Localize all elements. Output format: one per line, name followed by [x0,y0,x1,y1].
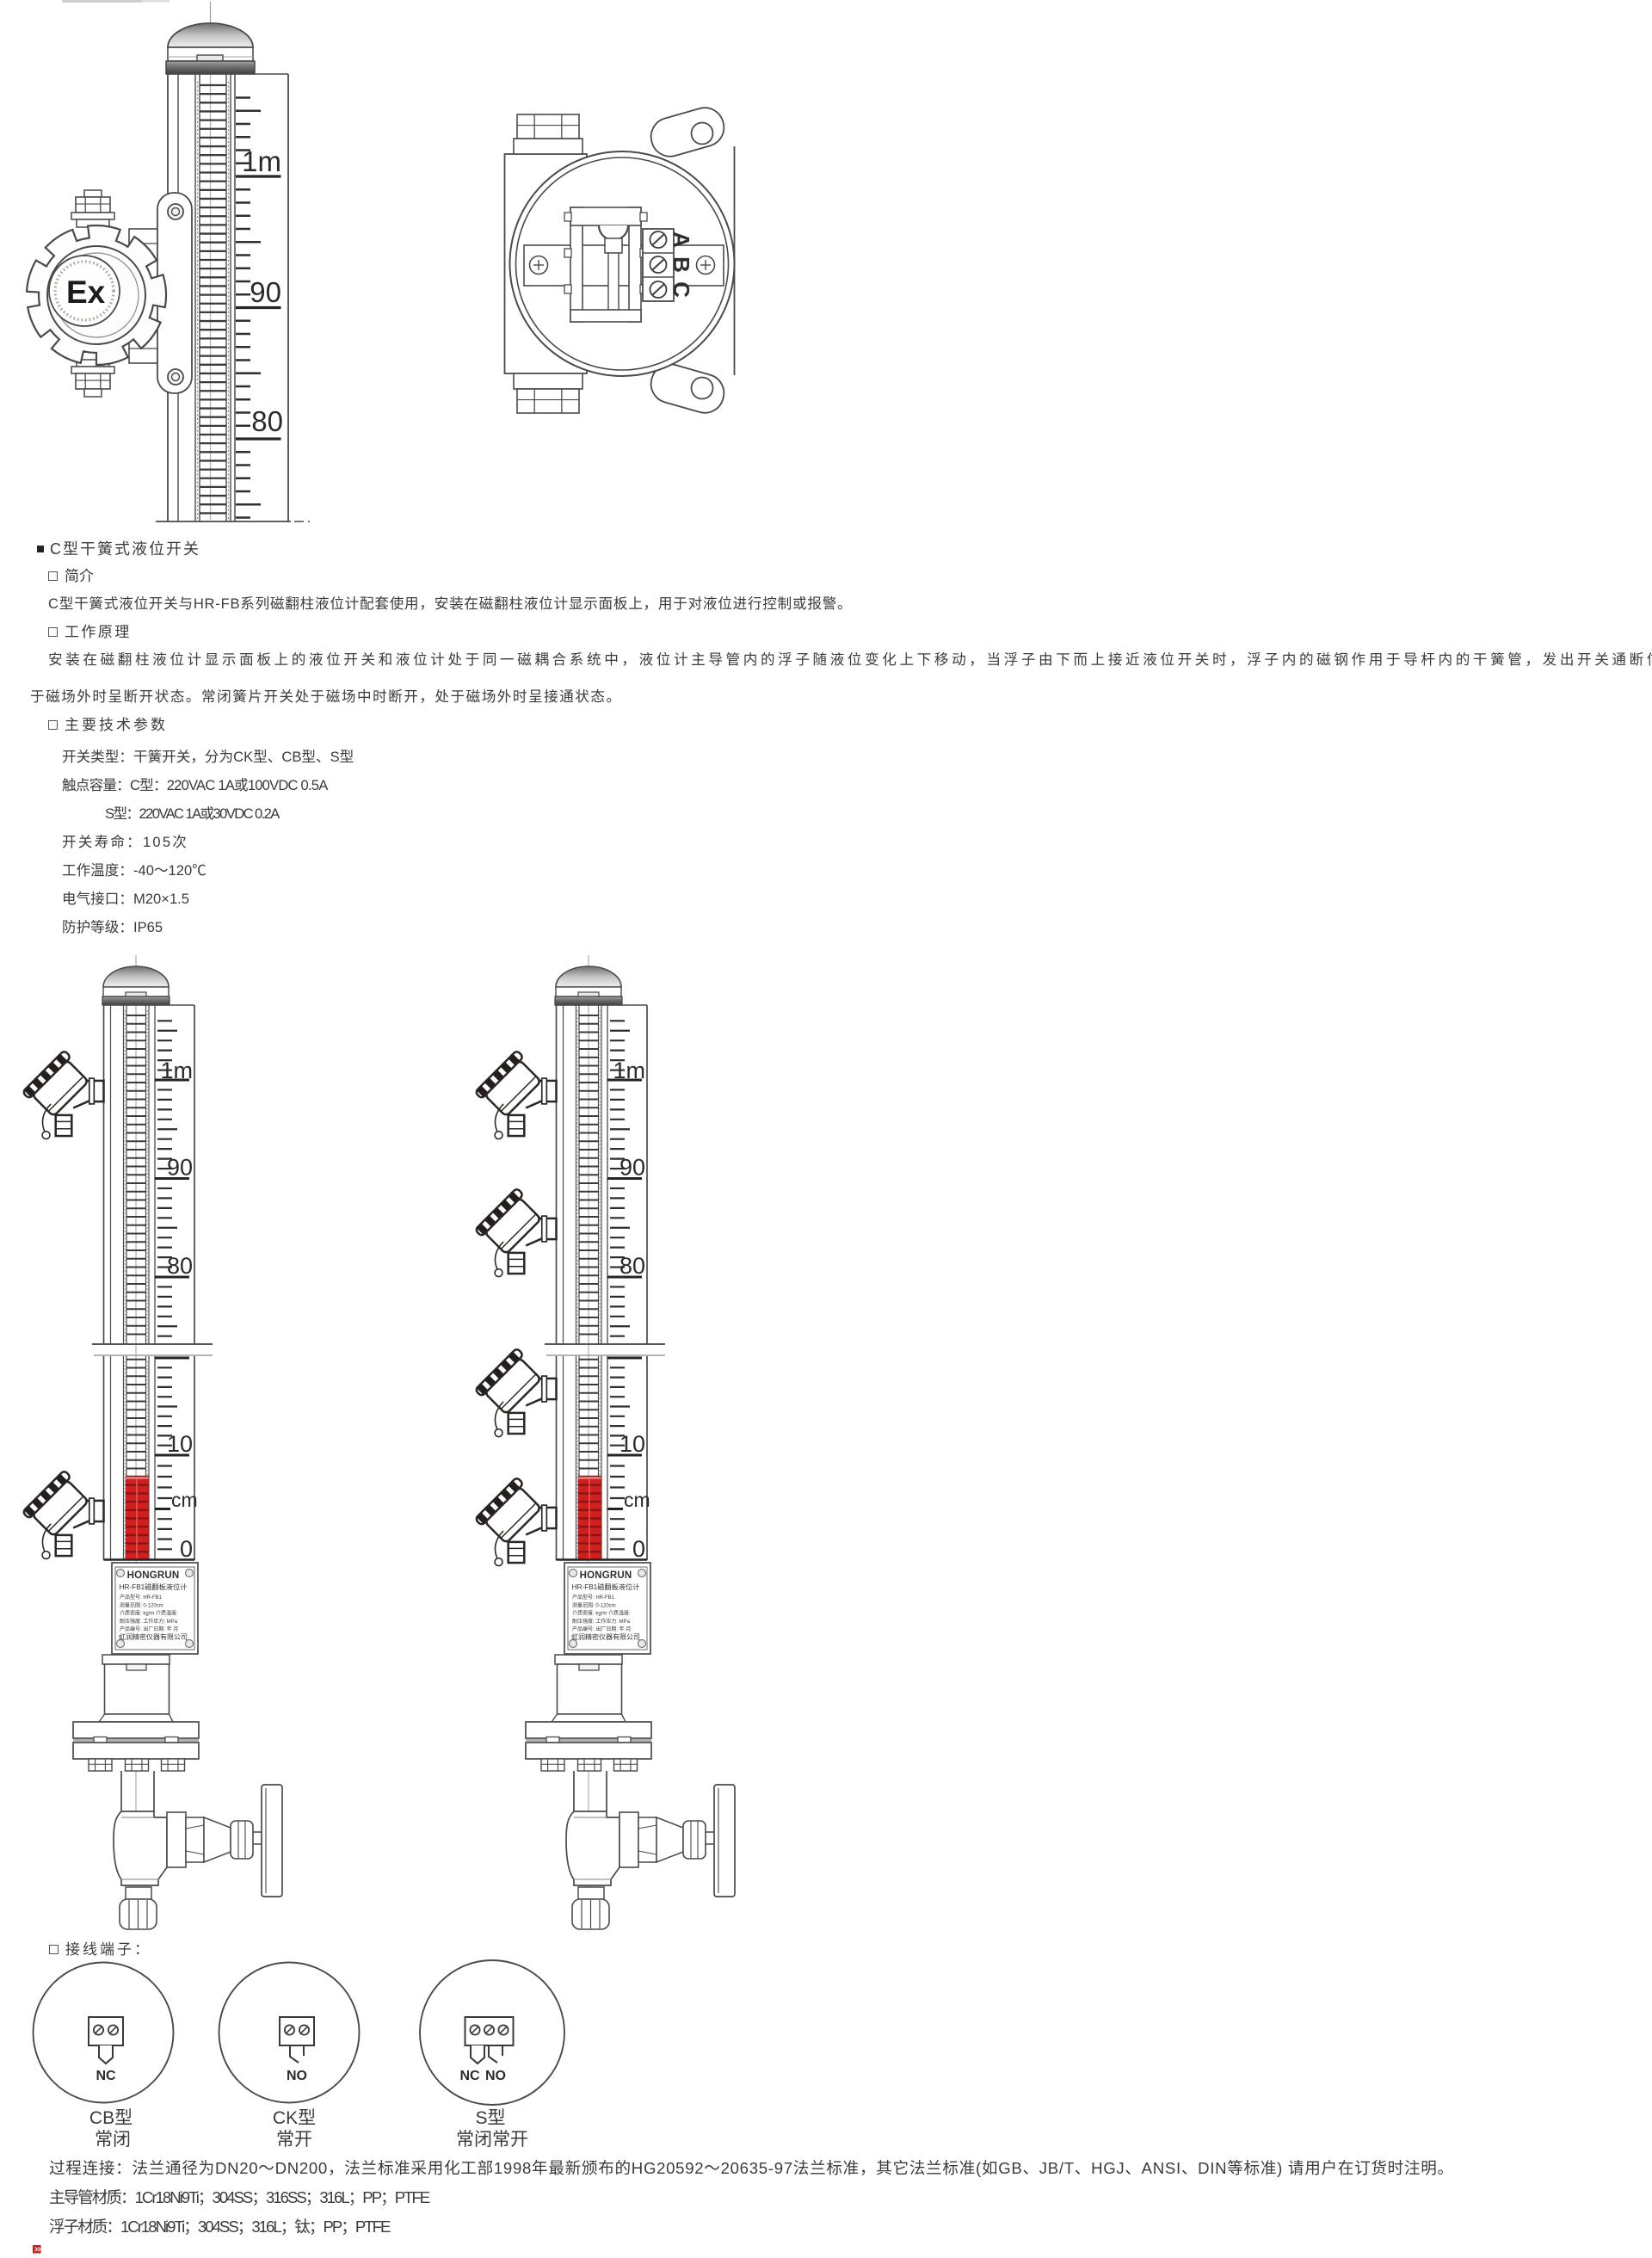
svg-text:0: 0 [180,1536,193,1562]
svg-text:Ex: Ex [66,275,106,310]
svg-text:产品编号: 出厂日期: 年 月: 产品编号: 出厂日期: 年 月 [120,1626,178,1632]
svg-text:NC: NC [459,2069,480,2083]
svg-text:耐压强度: 工作压力: MPa: 耐压强度: 工作压力: MPa [120,1618,178,1625]
svg-text:测量范围: 0-120cm: 测量范围: 0-120cm [572,1601,616,1608]
svg-text:HR-FB1磁翻板液位计: HR-FB1磁翻板液位计 [572,1582,640,1591]
svg-text:1m: 1m [160,1058,193,1083]
svg-text:HONGRUN: HONGRUN [580,1570,632,1581]
svg-text:cm: cm [624,1489,650,1511]
svg-text:NO: NO [287,2069,307,2083]
svg-text:C: C [669,281,694,298]
svg-text:cm: cm [171,1489,198,1511]
svg-text:产品编号: 出厂日期: 年 月: 产品编号: 出厂日期: 年 月 [572,1626,631,1632]
svg-text:NC: NC [96,2069,116,2083]
svg-text:介质密度: kg/m 介质温度:: 介质密度: kg/m 介质温度: [120,1610,178,1617]
svg-text:B: B [669,256,694,273]
svg-text:80: 80 [619,1253,645,1279]
svg-text:80: 80 [167,1253,193,1279]
svg-text:HR-FB1磁翻板液位计: HR-FB1磁翻板液位计 [120,1582,188,1591]
svg-text:虹润精密仪器有限公司: 虹润精密仪器有限公司 [571,1632,640,1641]
svg-text:90: 90 [250,276,281,308]
svg-text:90: 90 [167,1155,193,1181]
svg-text:0: 0 [632,1536,645,1562]
svg-text:90: 90 [619,1155,645,1181]
svg-text:测量范围: 0-120cm: 测量范围: 0-120cm [120,1601,163,1608]
svg-text:产品型号: HR-FB1: 产品型号: HR-FB1 [572,1594,615,1601]
svg-text:80: 80 [251,405,283,437]
svg-text:A: A [669,231,694,248]
svg-text:耐压强度: 工作压力: MPa: 耐压强度: 工作压力: MPa [572,1618,631,1625]
svg-text:NO: NO [485,2069,506,2083]
svg-text:1m: 1m [613,1058,645,1083]
svg-text:10: 10 [167,1431,193,1457]
svg-text:产品型号: HR-FB1: 产品型号: HR-FB1 [120,1594,163,1601]
svg-text:1m: 1m [242,145,281,177]
svg-text:虹润精密仪器有限公司: 虹润精密仪器有限公司 [119,1632,188,1641]
svg-text:介质密度: kg/m 介质温度:: 介质密度: kg/m 介质温度: [572,1610,631,1617]
svg-text:HONGRUN: HONGRUN [127,1570,180,1581]
svg-text:10: 10 [619,1431,645,1457]
